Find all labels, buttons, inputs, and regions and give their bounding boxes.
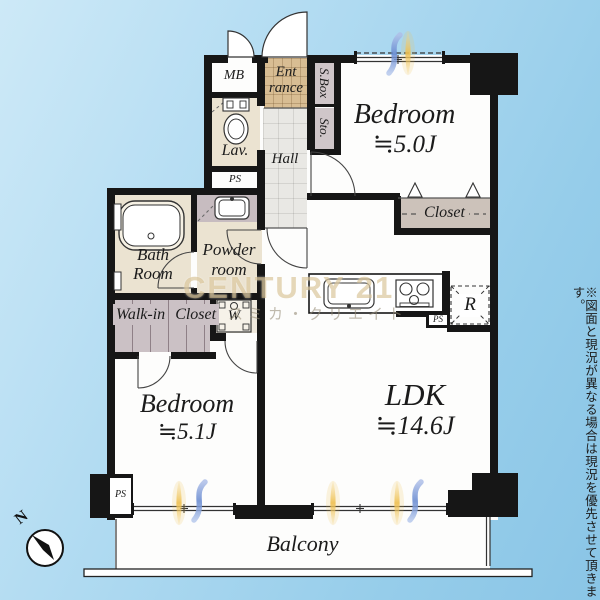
wic-line2: Closet <box>172 304 219 325</box>
powder-line1: Powder <box>196 240 262 260</box>
bedroom-a-name: Bedroom <box>322 100 487 130</box>
room-label-meter-box: MB <box>210 68 258 84</box>
room-label-ps-top: PS <box>210 173 260 185</box>
floorplan-canvas: Bedroom ≒5.0J Bedroom ≒5.1J LDK ≒14.6J B… <box>0 0 600 600</box>
bedroom-a-size: ≒5.0J <box>322 130 487 160</box>
entrance-line1: Ent <box>258 64 314 80</box>
pipe-space-kitchen: PS <box>427 313 449 327</box>
ldk-size: ≒14.6J <box>340 411 490 441</box>
bath-line2: Room <box>113 264 193 283</box>
ps-left-label: PS <box>110 489 131 500</box>
ldk-name: LDK <box>340 378 490 411</box>
pipe-space-left: PS <box>110 478 131 514</box>
room-label-refrigerator: R <box>455 294 485 316</box>
sunlight-icon <box>326 480 340 526</box>
powder-sink <box>198 196 249 221</box>
disclaimer-text: ※図面と現況が異なる場合は現況を優先させて頂きます。 <box>571 286 596 600</box>
closet-door-marks <box>408 183 480 197</box>
ps-kitchen-label: PS <box>429 314 447 324</box>
sunlight-icon <box>401 30 415 76</box>
wind-icon <box>194 482 205 520</box>
bedroom-b-name: Bedroom <box>112 390 262 418</box>
room-label-lavatory: Lav. <box>210 142 260 160</box>
toilet <box>212 97 249 144</box>
wic-line1: Walk-in <box>113 304 168 325</box>
entrance-door <box>262 12 307 57</box>
sunlight-icon <box>390 480 404 526</box>
room-label-balcony: Balcony <box>240 531 365 557</box>
bedroom-b-size: ≒5.1J <box>112 418 262 446</box>
room-label-walk-in-closet: Walk-in Closet <box>113 304 210 325</box>
room-label-entrance: Ent rance <box>258 64 314 96</box>
watermark-company: スミカ・クリエイト <box>228 303 408 324</box>
sunlight-icon <box>172 480 186 526</box>
bath-line1: Bath <box>113 245 193 264</box>
watermark-brand: CENTURY 21 <box>183 270 394 306</box>
room-label-bedroom-a: Bedroom ≒5.0J <box>322 100 487 160</box>
room-label-storage: Sto. <box>316 98 332 158</box>
wind-icon <box>410 482 421 520</box>
meter-box-door <box>228 31 254 57</box>
compass-icon <box>27 530 63 566</box>
entrance-line2: rance <box>258 80 314 96</box>
wind-icon <box>389 35 400 73</box>
room-label-hall: Hall <box>261 151 309 168</box>
building-edge-bar <box>84 569 532 577</box>
room-label-bath: Bath Room <box>113 245 193 283</box>
room-label-ldk: LDK ≒14.6J <box>340 378 490 441</box>
room-label-bedroom-b: Bedroom ≒5.1J <box>112 390 262 446</box>
room-label-closet: Closet <box>398 204 491 222</box>
